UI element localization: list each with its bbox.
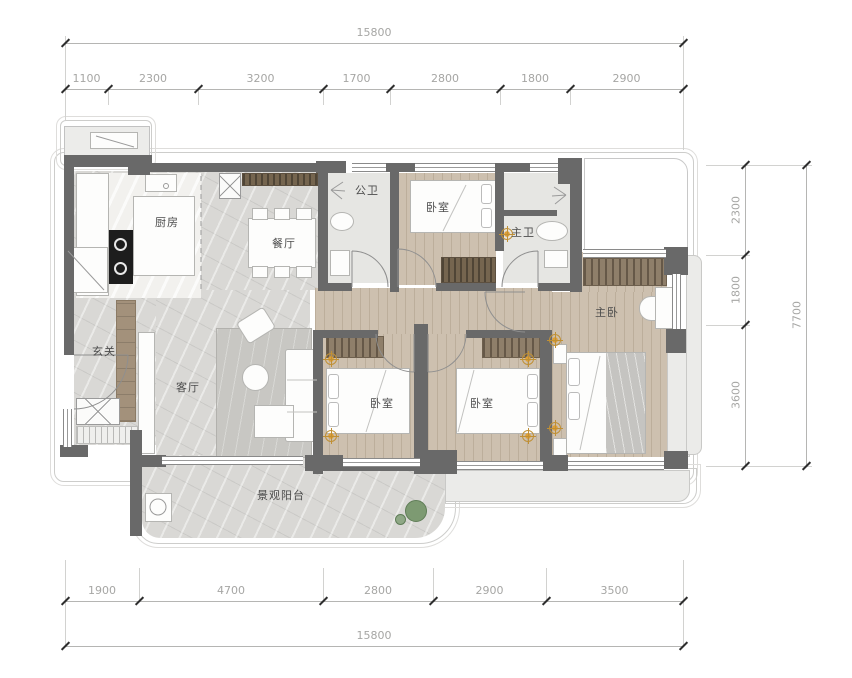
room-label-dining: 餐厅 [272,235,296,251]
room-label-balcony: 景观阳台 [257,487,305,503]
wall-bath-left [318,165,328,285]
wall-left [64,155,74,355]
sink-public [330,250,350,276]
dim-tick [679,641,688,650]
wall [390,163,399,292]
dim-bottom-seg: 3500 [546,584,683,597]
window [415,163,495,172]
dim-right-total-line [806,165,807,466]
dim-top-seg: 2300 [108,72,198,85]
dim-top-seg: 1700 [323,72,390,85]
bed-throw [606,353,645,453]
washer [145,493,172,522]
coffee-table [242,364,269,391]
room-label-public-bath: 公卫 [355,182,379,198]
toilet-public [330,212,354,231]
wall [666,329,686,353]
dim-ext [323,89,324,105]
bay-window-sill-east [686,255,702,455]
dim-top-total-line [65,43,683,44]
building-void-topright [584,158,688,252]
wardrobe-master [583,258,667,286]
pillow [527,374,538,399]
window [672,274,681,329]
dim-top-seg-line [65,89,683,90]
kitchen-island [133,196,195,276]
floor-plan-canvas: 厨房 餐厅 公卫 卧室 主卫 主卧 玄关 客厅 卧室 卧室 景观阳台 [0,0,852,678]
wall [664,247,688,275]
wall [399,163,415,172]
dining-chair [296,266,312,278]
pillow [568,392,580,420]
sideboard [242,173,318,186]
wall [313,330,323,474]
dim-ext [198,89,199,105]
platform-window [90,132,138,149]
room-label-bedroom-top: 卧室 [426,199,450,215]
wall [664,451,688,469]
toilet-master [536,221,568,241]
floor-corridor [315,288,552,334]
plant-icon [405,500,427,522]
wall-balcony-left [130,430,142,536]
wall [420,450,457,474]
stove-burner-2 [114,262,127,275]
downlight-icon [325,353,337,365]
dim-bottom-seg: 2900 [433,584,546,597]
room-label-master-bath: 主卫 [511,224,535,240]
room-label-bedroom-right: 卧室 [470,395,494,411]
cabinet-hatch [219,173,241,199]
dim-top-seg: 2900 [570,72,683,85]
window [352,163,386,172]
dining-chair [252,266,268,278]
dim-right-seg: 2300 [729,165,743,255]
window-master-top [583,249,666,258]
dim-top-seg: 3200 [198,72,323,85]
wall [320,330,378,338]
dim-ext [390,89,391,105]
dim-right-total: 7700 [790,165,804,466]
window [343,458,420,467]
dining-chair [274,266,290,278]
dim-bottom-seg: 4700 [139,584,323,597]
pillow [527,402,538,427]
dim-ext [500,89,501,105]
downlight-icon [549,422,561,434]
dim-bottom-seg: 2800 [323,584,433,597]
dim-top-seg: 2800 [390,72,500,85]
dim-ext [706,466,812,467]
wall [318,283,352,291]
side-table [254,405,294,438]
pillow [328,374,339,399]
dim-right-seg-line [745,165,746,466]
room-label-bedroom-left: 卧室 [370,395,394,411]
downlight-icon [325,430,337,442]
wall [150,163,318,172]
wall [540,330,552,470]
shoe-cabinet [76,398,120,425]
shower-partition [503,210,557,216]
window [63,409,72,447]
pillow [568,358,580,386]
room-label-kitchen: 厨房 [155,214,179,230]
downlight-icon [522,430,534,442]
window [530,163,558,172]
kitchen-sink [145,174,177,192]
dining-chair [274,208,290,220]
room-label-master-bedroom: 主卧 [595,304,619,320]
wall [436,283,496,291]
dim-ext [683,560,684,646]
dim-bottom-total-line [65,646,683,647]
dim-ext [108,89,109,105]
room-label-entry: 玄关 [92,343,116,359]
dim-top-total: 15800 [65,26,683,39]
dining-chair [296,208,312,220]
dim-top-seg: 1800 [500,72,570,85]
dim-bottom-seg-line [65,601,683,602]
dining-chair [252,208,268,220]
dim-right-seg: 3600 [729,325,743,466]
window-bay [457,461,543,470]
dresser-top-bedroom [441,257,496,283]
pillow [328,402,339,427]
bay-window-sill-bottom [445,470,690,502]
balcony-sliding-door [162,456,303,465]
wall [543,455,568,471]
dim-top-seg: 1100 [65,72,108,85]
room-label-living: 客厅 [176,379,200,395]
pillow [481,208,492,228]
dim-bottom-total: 15800 [65,629,683,642]
desk-chair [639,296,656,321]
wall [128,158,150,175]
dim-ext [570,89,571,105]
wall [570,158,582,292]
sink-master [544,250,568,268]
downlight-icon [549,334,561,346]
wall [466,330,540,338]
window-bay [568,461,664,470]
downlight-icon [522,353,534,365]
dim-bottom-seg: 1900 [65,584,139,597]
stove-burner-1 [114,238,127,251]
dim-ext [683,36,684,150]
plant-small-icon [395,514,406,525]
pillow [481,184,492,204]
dim-right-seg: 1800 [729,255,743,325]
